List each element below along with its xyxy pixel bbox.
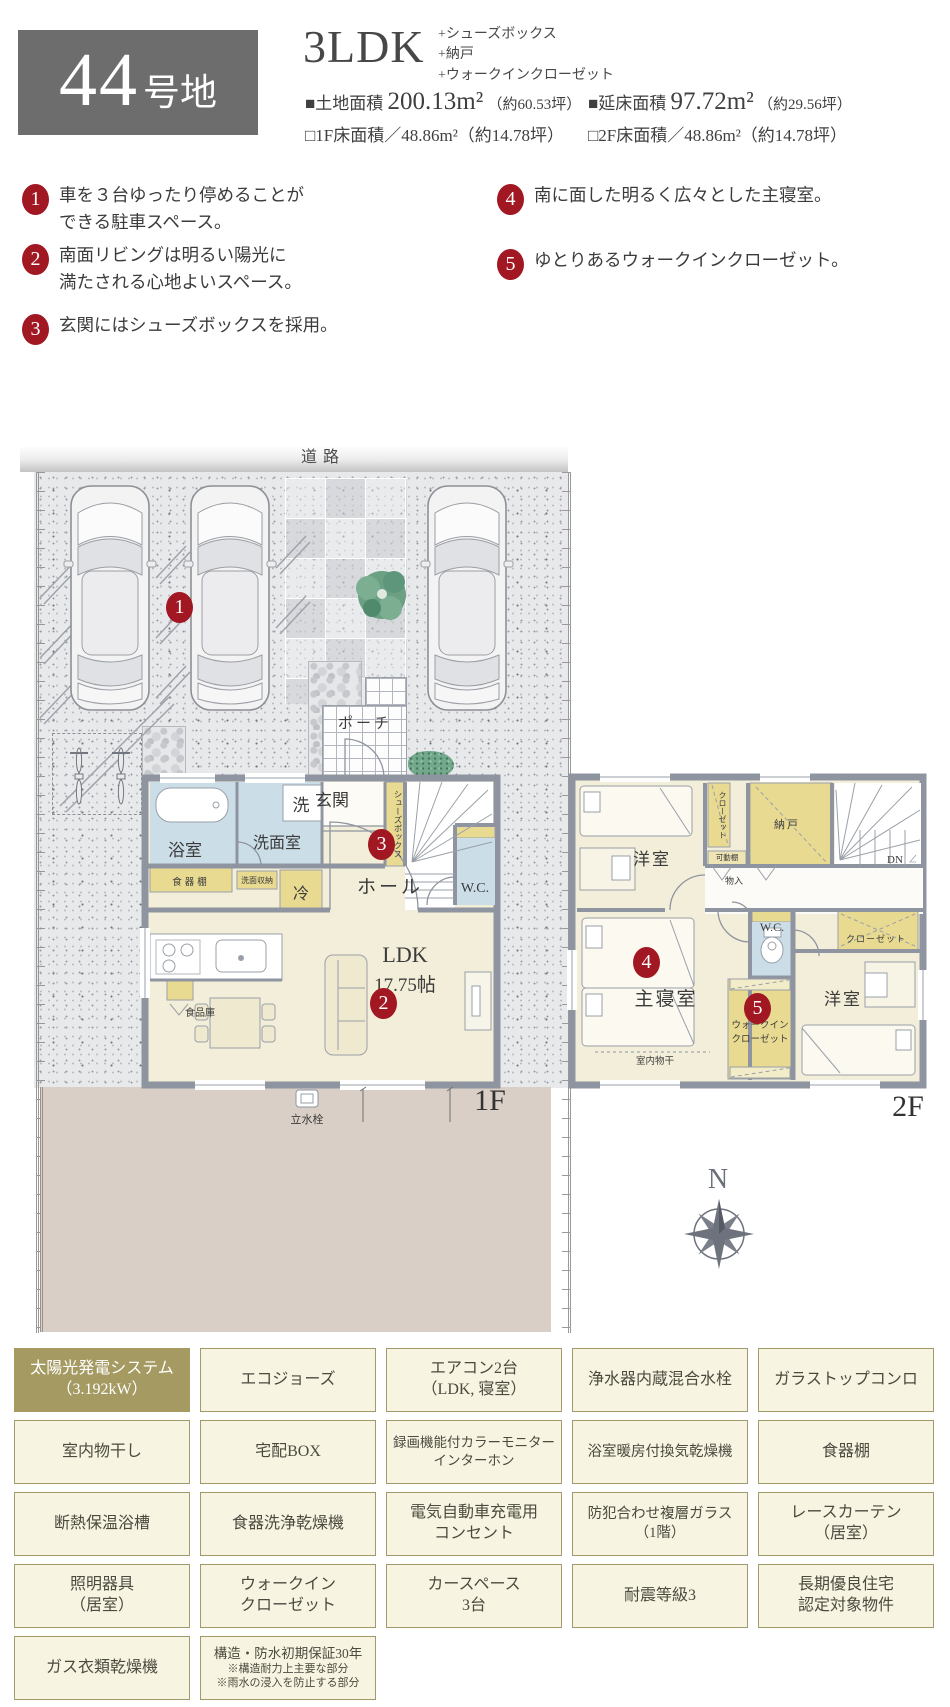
room-label-wc-1f: W.C. [445,881,505,897]
tv-board-icon [465,972,491,1030]
compass-north-label: N [682,1165,754,1195]
equipment-tag: 耐震等級3 [572,1564,748,1628]
bed-icon [802,1025,915,1075]
equipment-tag: エコジョーズ [200,1348,376,1412]
compass: N [682,1165,754,1271]
label-movable-shelf: 可動棚 [708,852,746,863]
kitchen-icon [150,934,282,980]
total-floor-area-label: ■延床面積 [588,94,666,113]
equipment-tag: 録画機能付カラーモニターインターホン [386,1420,562,1484]
lot-number-suffix: 号地 [143,62,217,116]
room-label-bath: 浴室 [155,836,215,861]
equipment-tag: 宅配BOX [200,1420,376,1484]
land-area-value: 200.13m² [388,88,484,115]
feature-text: 車を３台ゆったり停めることが できる駐車スペース。 [59,182,304,236]
bed-icon [582,918,694,1046]
equipment-tag: ウォークインクローゼット [200,1564,376,1628]
feature-5: 5 ゆとりあるウォークインクローゼット。 [497,247,897,280]
feature-4: 4 南に面した明るく広々とした主寝室。 [497,182,897,215]
room-label-hall: ホール [350,872,430,899]
label-wic-line2: クローゼット [720,1031,800,1045]
floor-label-1f: 1F [455,1084,525,1118]
equipment-tags: 太陽光発電システム（3.192kW） エコジョーズ エアコン2台（LDK, 寝室… [14,1348,936,1700]
label-dn: DN [875,854,915,866]
equipment-tag: 電気自動車充電用コンセント [386,1492,562,1556]
marker-1-badge: 1 [22,184,49,215]
tree-icon [356,571,406,620]
car-icon [421,486,513,710]
room-label-entrance: 玄関 [302,786,362,811]
label-cupboard: 食器棚 [151,874,231,888]
equipment-tag: 防犯合わせ複層ガラス（1階） [572,1492,748,1556]
marker-2-badge: 2 [370,988,397,1019]
marker-1-badge: 1 [166,592,193,623]
marker-5-badge: 5 [497,249,524,280]
plan-extras: +シューズボックス +納戸 +ウォークインクローゼット [438,25,614,86]
room-label-wc-2f: W.C. [742,920,802,935]
plan-extra-item: +ウォークインクローゼット [438,66,614,86]
room-label-bedroom-b: 洋室 [803,985,883,1010]
marker-2-badge: 2 [22,244,49,275]
marker-4-badge: 4 [633,947,660,978]
equipment-tag: 構造・防水初期保証30年 ※構造耐力上主要な部分 ※雨水の浸入を防止する部分 [200,1636,376,1700]
label-closet-b: クローゼット [836,932,916,945]
equipment-tag: 浄水器内蔵混合水栓 [572,1348,748,1412]
land-area-tsubo: （約60.53坪） [487,97,581,113]
feature-3: 3 玄関にはシューズボックスを採用。 [22,312,402,345]
equipment-tag: ガラストップコンロ [758,1348,934,1412]
floor2-area: □2F床面積／48.86m²（約14.78坪） [588,121,847,146]
room-label-ldk-size: 17.75帖 [350,970,460,997]
site-plan-1f: 道路 [20,428,568,1333]
total-floor-area: ■延床面積 97.72m² （約29.56坪） [588,88,852,116]
room-label-washroom: 洗面室 [247,829,307,853]
room-label-master: 主寝室 [606,984,726,1011]
room-label-ldk: LDK [350,942,460,968]
equipment-tag: 断熱保温浴槽 [14,1492,190,1556]
floor1-area: □1F床面積／48.86m²（約14.78坪） [305,121,564,146]
feature-1: 1 車を３台ゆったり停めることが できる駐車スペース。 [22,182,382,236]
equipment-tag: 食器洗浄乾燥機 [200,1492,376,1556]
marker-4-badge: 4 [497,184,524,215]
bicycle-icon [70,748,88,804]
equipment-tag: 食器棚 [758,1420,934,1484]
total-floor-area-value: 97.72m² [671,88,754,115]
equipment-tag: 長期優良住宅認定対象物件 [758,1564,934,1628]
land-area-label: ■土地面積 [305,94,383,113]
label-pantry: 食品庫 [160,1004,240,1019]
total-floor-area-tsubo: （約29.56坪） [758,97,852,113]
feature-2: 2 南面リビングは明るい陽光に 満たされる心地よいスペース。 [22,242,382,296]
car-icon [184,486,276,710]
lot-number: 44 [59,30,139,130]
equipment-tag: 照明器具（居室） [14,1564,190,1628]
label-tap: 立水栓 [267,1111,347,1127]
compass-rose-icon [682,1197,756,1271]
plan-extra-item: +納戸 [438,45,614,65]
bathtub-icon [156,788,228,822]
car-icon [64,486,156,710]
equipment-tag: 室内物干し [14,1420,190,1484]
porch-label: ポーチ [325,712,405,733]
marker-5-badge: 5 [744,993,771,1024]
land-area: ■土地面積 200.13m² （約60.53坪） [305,88,581,116]
plan-type: 3LDK [303,20,425,73]
label-indoor-drying: 室内物干 [615,1053,695,1067]
label-wash-storage: 洗面収納 [227,875,287,886]
floor-label-2f: 2F [868,1090,948,1124]
bicycle-icon [112,748,130,804]
equipment-tag: エアコン2台（LDK, 寝室） [386,1348,562,1412]
room-label-storage: 納戸 [757,816,817,832]
room-label-bedroom-a: 洋室 [612,845,692,870]
water-tap-icon [296,1090,318,1107]
equipment-tag: 浴室暖房付換気乾燥機 [572,1420,748,1484]
feature-text: 南面リビングは明るい陽光に 満たされる心地よいスペース。 [59,242,302,296]
label-storage-small: 物入 [704,874,764,887]
equipment-tag: レースカーテン（居室） [758,1492,934,1556]
label-fridge: 冷 [281,880,321,904]
dimension-lines [360,1087,453,1122]
equipment-tag: カースペース3台 [386,1564,562,1628]
plan-2f-drawing [560,770,935,1130]
equipment-tag: ガス衣類乾燥機 [14,1636,190,1700]
marker-3-badge: 3 [368,829,395,860]
lot-number-box: 44 号地 [18,30,258,135]
plan-extra-item: +シューズボックス [438,25,614,45]
marker-3-badge: 3 [22,314,49,345]
equipment-tag: 太陽光発電システム（3.192kW） [14,1348,190,1412]
plan-2f: 洋室 クローゼット 可動棚 納戸 DN 物入 W.C. 主寝室 室内物干 ウォー… [560,770,935,1130]
flyer-page: 44 号地 3LDK +シューズボックス +納戸 +ウォークインクローゼット ■… [0,0,950,1707]
label-closet-a: クローゼット [710,785,728,845]
